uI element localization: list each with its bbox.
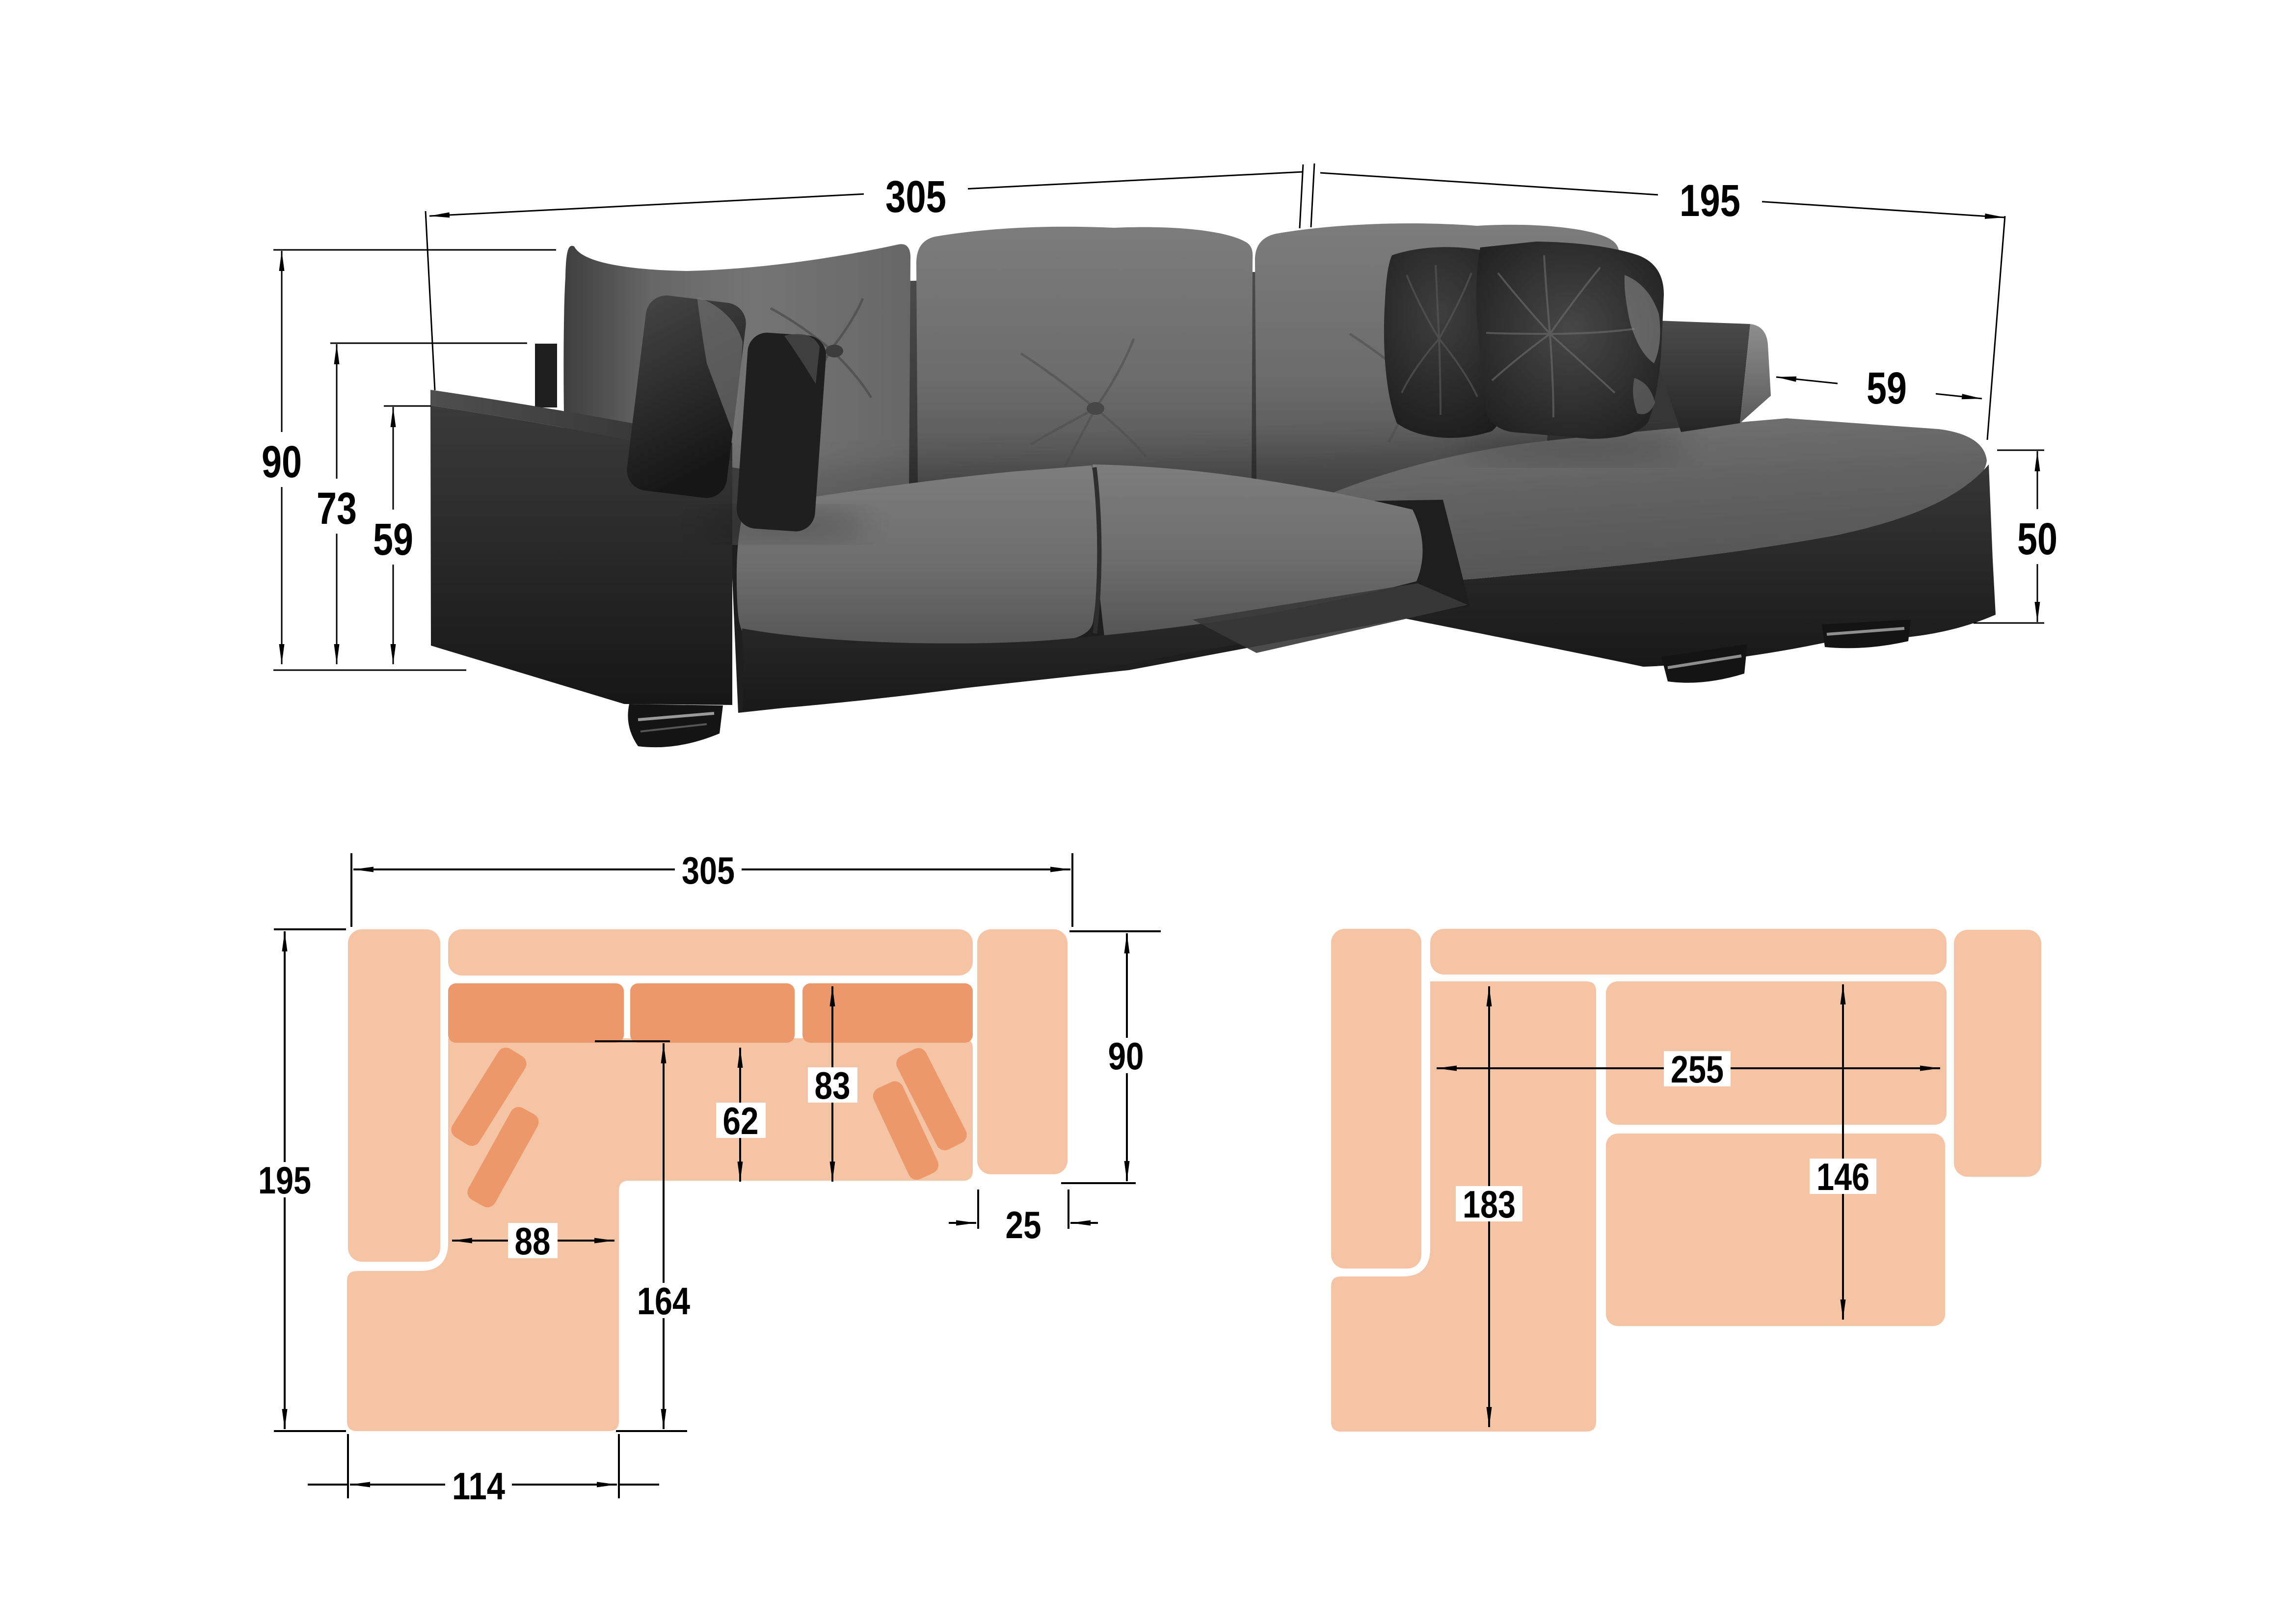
svg-text:195: 195	[1680, 176, 1740, 226]
svg-text:59: 59	[1867, 363, 1907, 413]
svg-text:114: 114	[452, 1464, 505, 1508]
svg-text:255: 255	[1671, 1048, 1724, 1091]
svg-text:305: 305	[885, 172, 946, 222]
svg-text:164: 164	[637, 1279, 690, 1323]
svg-text:146: 146	[1816, 1155, 1869, 1198]
svg-text:88: 88	[515, 1219, 551, 1263]
svg-text:90: 90	[262, 437, 302, 487]
svg-text:305: 305	[682, 849, 735, 892]
svg-text:90: 90	[1108, 1034, 1144, 1078]
svg-text:83: 83	[815, 1064, 851, 1107]
svg-text:62: 62	[723, 1099, 759, 1142]
svg-text:25: 25	[1006, 1203, 1041, 1246]
svg-text:50: 50	[2017, 514, 2057, 564]
svg-text:59: 59	[373, 514, 413, 565]
svg-text:195: 195	[258, 1159, 311, 1202]
svg-text:183: 183	[1463, 1183, 1516, 1226]
svg-text:73: 73	[317, 484, 357, 534]
